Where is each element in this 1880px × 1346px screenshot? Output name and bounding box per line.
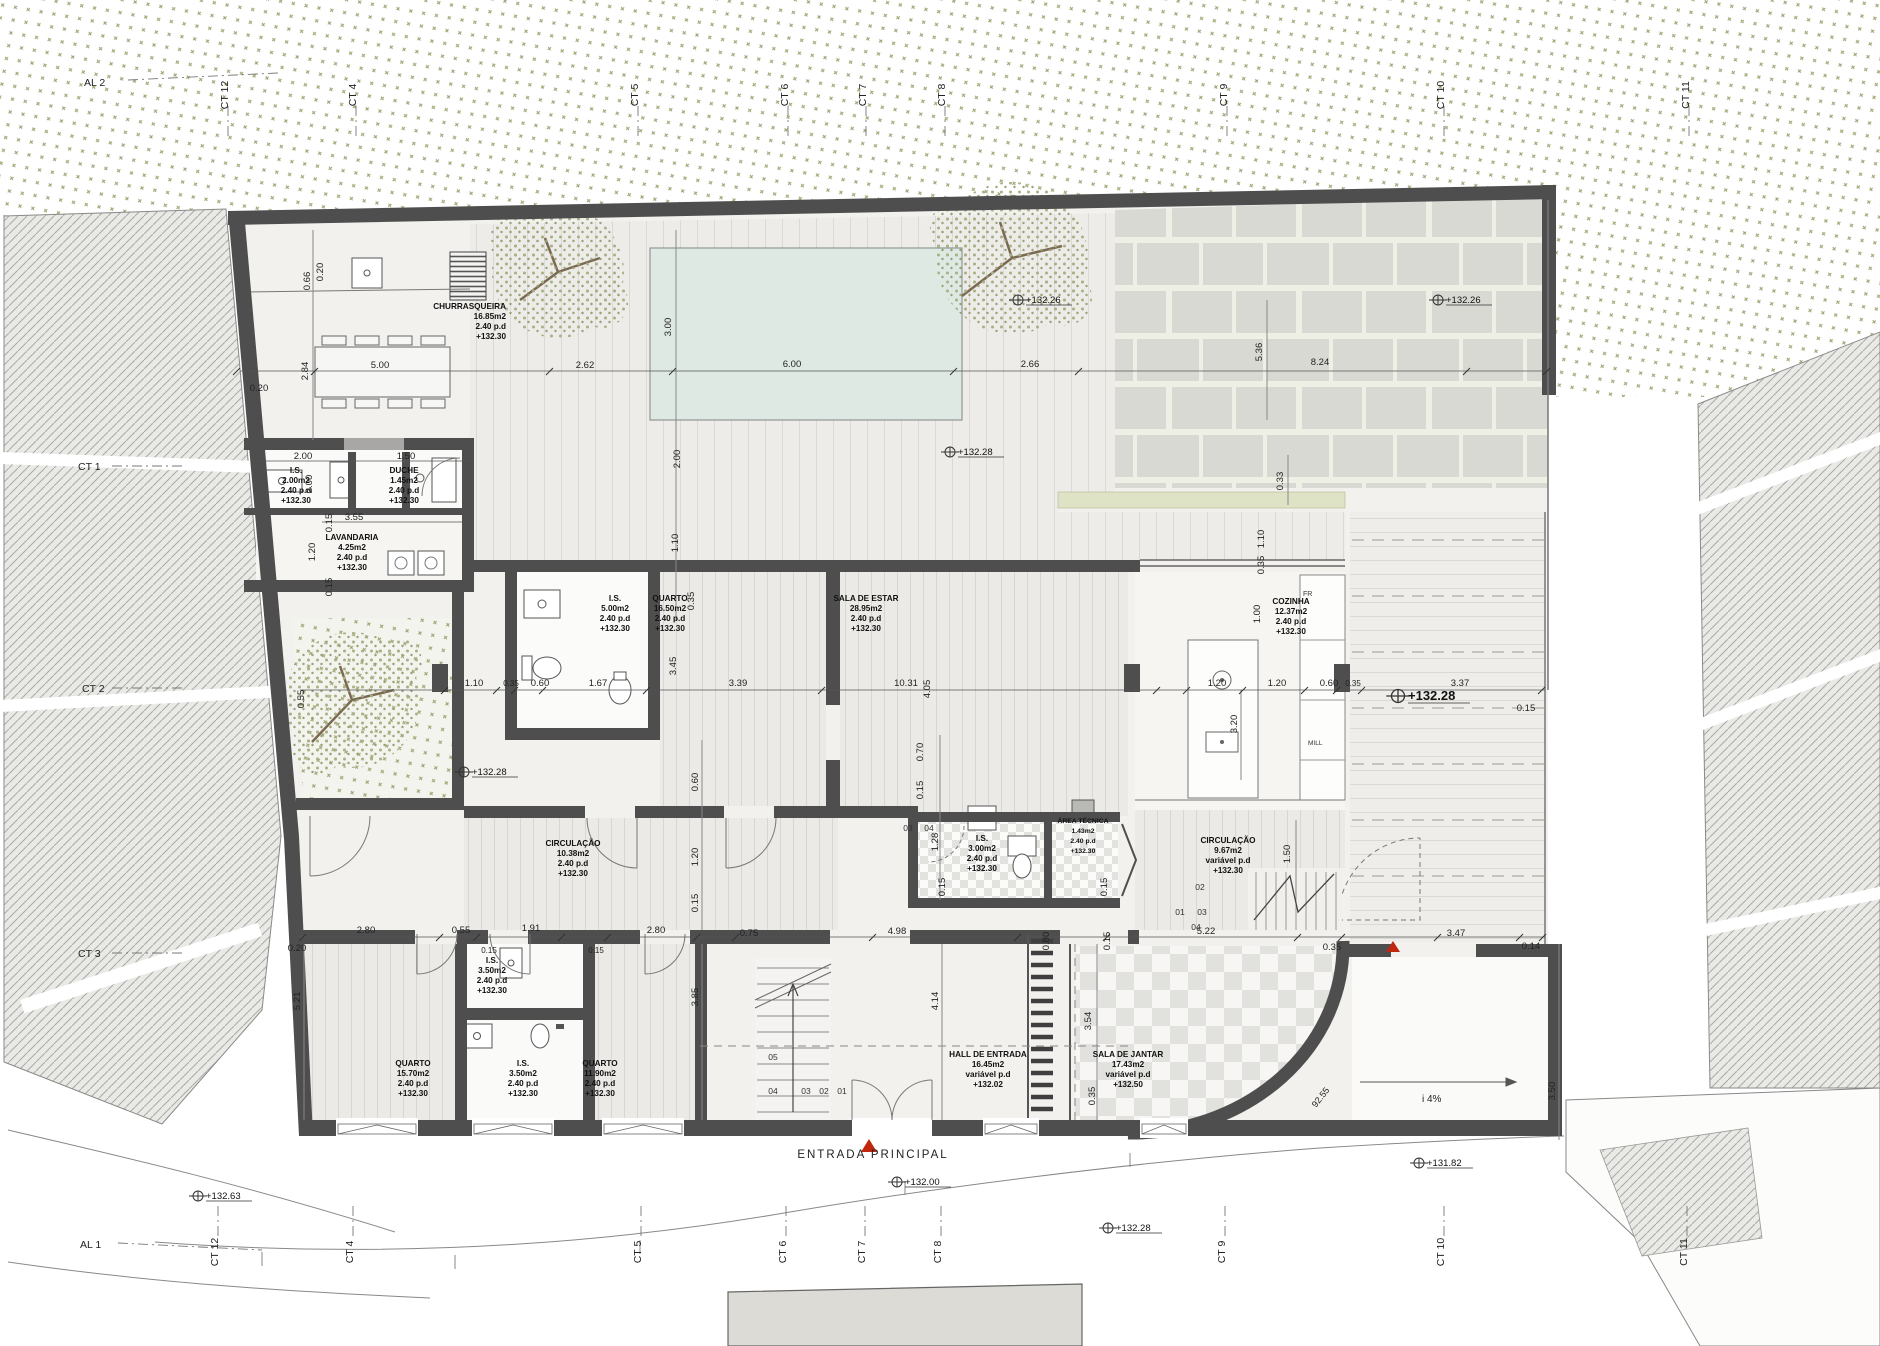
grid-label: CT 4 [344, 1241, 356, 1264]
dim-label: 2.00 [294, 451, 313, 462]
level-label: +132.28 [472, 767, 507, 778]
circulation2-floor-b [1135, 868, 1248, 930]
outdoor-sink [352, 258, 382, 288]
stair-to-upper [1031, 941, 1053, 1109]
dim-label: 1.10 [670, 534, 681, 553]
timber-deck-strip [1058, 512, 1345, 560]
grid-label: AL 1 [80, 1239, 101, 1251]
grid-label: CT 1 [78, 461, 101, 473]
dim-label: 0.35 [1087, 1087, 1098, 1106]
dim-label: 0.15 [690, 894, 701, 913]
dim-label: 1.28 [930, 833, 941, 852]
dim-label: 0.80 [1041, 932, 1052, 951]
neighbour-bottom-building [728, 1284, 1082, 1346]
dim-label: 1.50 [1282, 845, 1293, 864]
dim-label: 3.85 [690, 988, 701, 1007]
floor-plan-sheet: AL 2 CT 12 CT 4 CT 5 CT 6 CT 7 CT 8 CT 9… [0, 0, 1880, 1346]
dim-label: 3.47 [1447, 928, 1466, 939]
dim-label: 0.15 [1102, 932, 1113, 951]
dim-label: 0.55 [296, 690, 307, 709]
appliance-label: MILL [1308, 740, 1323, 747]
hedge-strip [1058, 492, 1345, 508]
dim-label: 3.54 [1083, 1012, 1094, 1031]
dim-label: 0.66 [302, 272, 313, 291]
grid-label: CT 3 [78, 948, 101, 960]
dim-label: 5.36 [1254, 343, 1265, 362]
dim-label: 2.80 [647, 925, 666, 936]
dim-label: 4.14 [930, 992, 941, 1011]
dim-label: 0.15 [937, 878, 948, 897]
level-label: +132.28 [1116, 1223, 1151, 1234]
dim-label: 0.15 [588, 946, 604, 955]
entrance-label: ENTRADA PRINCIPAL [797, 1149, 948, 1161]
dim-label: 1.91 [522, 923, 541, 934]
dim-label: 3.37 [1451, 678, 1470, 689]
grid-label: CT 7 [856, 1241, 868, 1264]
dim-label: 5.00 [371, 360, 390, 371]
ref-number: 03 [903, 823, 913, 833]
dim-label: 4.98 [888, 926, 907, 937]
grid-label: CT 9 [1218, 84, 1230, 107]
room-label: QUARTO15.70m22.40 p.d+132.30 [395, 1059, 431, 1098]
dim-label: 10.31 [894, 678, 918, 689]
kitchen-island [1188, 640, 1258, 798]
bedroom2-floor [305, 944, 455, 1120]
level-label: +131.82 [1427, 1158, 1462, 1169]
pool [650, 248, 962, 420]
dim-label: 0.35 [1256, 556, 1267, 575]
dining-table-outdoor [315, 336, 450, 408]
grid-label: CT 10 [1435, 1238, 1447, 1267]
dim-label: 0.15 [324, 578, 335, 597]
grid-label: AL 2 [84, 77, 105, 89]
dim-label: 0.20 [315, 263, 326, 282]
level-label: +132.28 [958, 447, 993, 458]
dim-label: 1.20 [307, 543, 318, 562]
dim-label: 2.80 [357, 925, 376, 936]
floor-plan-drawing: AL 2 CT 12 CT 4 CT 5 CT 6 CT 7 CT 8 CT 9… [0, 0, 1880, 1346]
dim-label: 0.35 [1323, 942, 1342, 953]
fridge-label: FR [1303, 591, 1312, 598]
dim-label: 0.55 [452, 925, 471, 936]
dim-label: 0.20 [288, 943, 307, 954]
room-label: QUARTO11.90m22.40 p.d+132.30 [582, 1059, 618, 1098]
grid-label: CT 8 [936, 84, 948, 107]
room-label: COZINHA12.37m22.40 p.d+132.30 [1272, 597, 1309, 636]
dim-label: 1.50 [397, 451, 416, 462]
ramp-floor [1352, 957, 1548, 1122]
dim-label: 0.14 [1522, 941, 1541, 952]
grid-label: CT 5 [629, 84, 641, 107]
dim-label: 3.45 [668, 657, 679, 676]
dim-label: 0.60 [1320, 678, 1339, 689]
level-label: +132.28 [1408, 688, 1455, 703]
grid-label: CT 2 [82, 683, 105, 695]
grid-label: CT 11 [1680, 81, 1692, 109]
dim-label: 8.24 [1311, 357, 1330, 368]
grill-icon [450, 252, 486, 300]
dim-label: 0.60 [690, 773, 701, 792]
ref-number: 03 [801, 1086, 811, 1096]
grid-label: CT 6 [777, 1241, 789, 1264]
dim-label: 0.15 [915, 781, 926, 800]
ref-number: 04 [768, 1086, 778, 1096]
ref-number: 04 [1191, 922, 1201, 932]
grass-pavers [1115, 196, 1548, 488]
dim-label: 3.39 [729, 678, 748, 689]
dim-label: 0.35 [503, 679, 519, 688]
dim-label: 1.20 [1268, 678, 1287, 689]
corridor-floor [464, 818, 838, 930]
level-label: +132.00 [905, 1177, 940, 1188]
ref-number: 02 [1195, 882, 1205, 892]
level-label: +132.26 [1026, 295, 1061, 306]
ref-number: 02 [819, 1086, 829, 1096]
ref-number: 05 [768, 1052, 778, 1062]
level-label: +132.26 [1446, 295, 1481, 306]
grid-label: CT 12 [219, 81, 231, 110]
ref-number: 01 [837, 1086, 847, 1096]
level-label: +132.63 [206, 1191, 241, 1202]
dim-label: 3.50 [1547, 1082, 1558, 1101]
dim-label: 3.55 [345, 512, 364, 523]
dim-label: 4.05 [922, 680, 933, 699]
dim-label: 0.70 [915, 743, 926, 762]
grid-label: CT 5 [632, 1241, 644, 1264]
dim-label: 2.66 [1021, 359, 1040, 370]
dim-label: 2.84 [300, 362, 311, 381]
dim-label: 1.00 [1252, 605, 1263, 624]
dim-label: 1.10 [1256, 530, 1267, 549]
dim-label: 0.15 [324, 514, 335, 533]
dim-label: 0.15 [1099, 878, 1110, 897]
dim-label: 0.33 [1275, 472, 1286, 491]
ramp-slope-label: i 4% [1422, 1094, 1442, 1105]
dim-label: 1.67 [589, 678, 608, 689]
dim-label: 1.20 [1208, 678, 1227, 689]
dim-label: 0.20 [250, 383, 269, 394]
grid-label: CT 8 [932, 1241, 944, 1264]
dim-label: 6.00 [783, 359, 802, 370]
dim-label: 2.62 [576, 360, 595, 371]
dim-label: 0.15 [481, 946, 497, 955]
dim-label: 5.21 [292, 992, 303, 1011]
dim-label: 3.00 [663, 318, 674, 337]
ref-number: 01 [1175, 907, 1185, 917]
side-patio-deck [1350, 512, 1546, 942]
dim-label: 0.35 [686, 592, 697, 611]
grid-label: CT 4 [347, 84, 359, 107]
dim-label: 1.20 [690, 848, 701, 867]
grid-label: CT 11 [1678, 1238, 1690, 1266]
dim-label: 2.00 [672, 450, 683, 469]
grid-label: CT 10 [1435, 81, 1447, 110]
room-label: QUARTO16.50m22.40 p.d+132.30 [652, 594, 688, 633]
grid-label: CT 9 [1216, 1241, 1228, 1264]
dim-label: 3.20 [1229, 715, 1240, 734]
neighbour-right-hatch [1690, 332, 1880, 1088]
room-label: DUCHE1.45m22.40 p.d+132.30 [389, 466, 420, 505]
dim-label: 2.00 [304, 475, 315, 494]
dim-label: 1.10 [465, 678, 484, 689]
dim-label: 0.60 [531, 678, 550, 689]
grid-label: CT 12 [209, 1238, 221, 1267]
ref-number: 04 [924, 823, 934, 833]
grid-label: CT 7 [857, 84, 869, 107]
dim-label: 0.15 [1517, 703, 1536, 714]
dim-label: 0.35 [1345, 679, 1361, 688]
grid-label: CT 6 [779, 84, 791, 107]
dim-label: 0.75 [740, 928, 759, 939]
ref-number: 03 [1197, 907, 1207, 917]
